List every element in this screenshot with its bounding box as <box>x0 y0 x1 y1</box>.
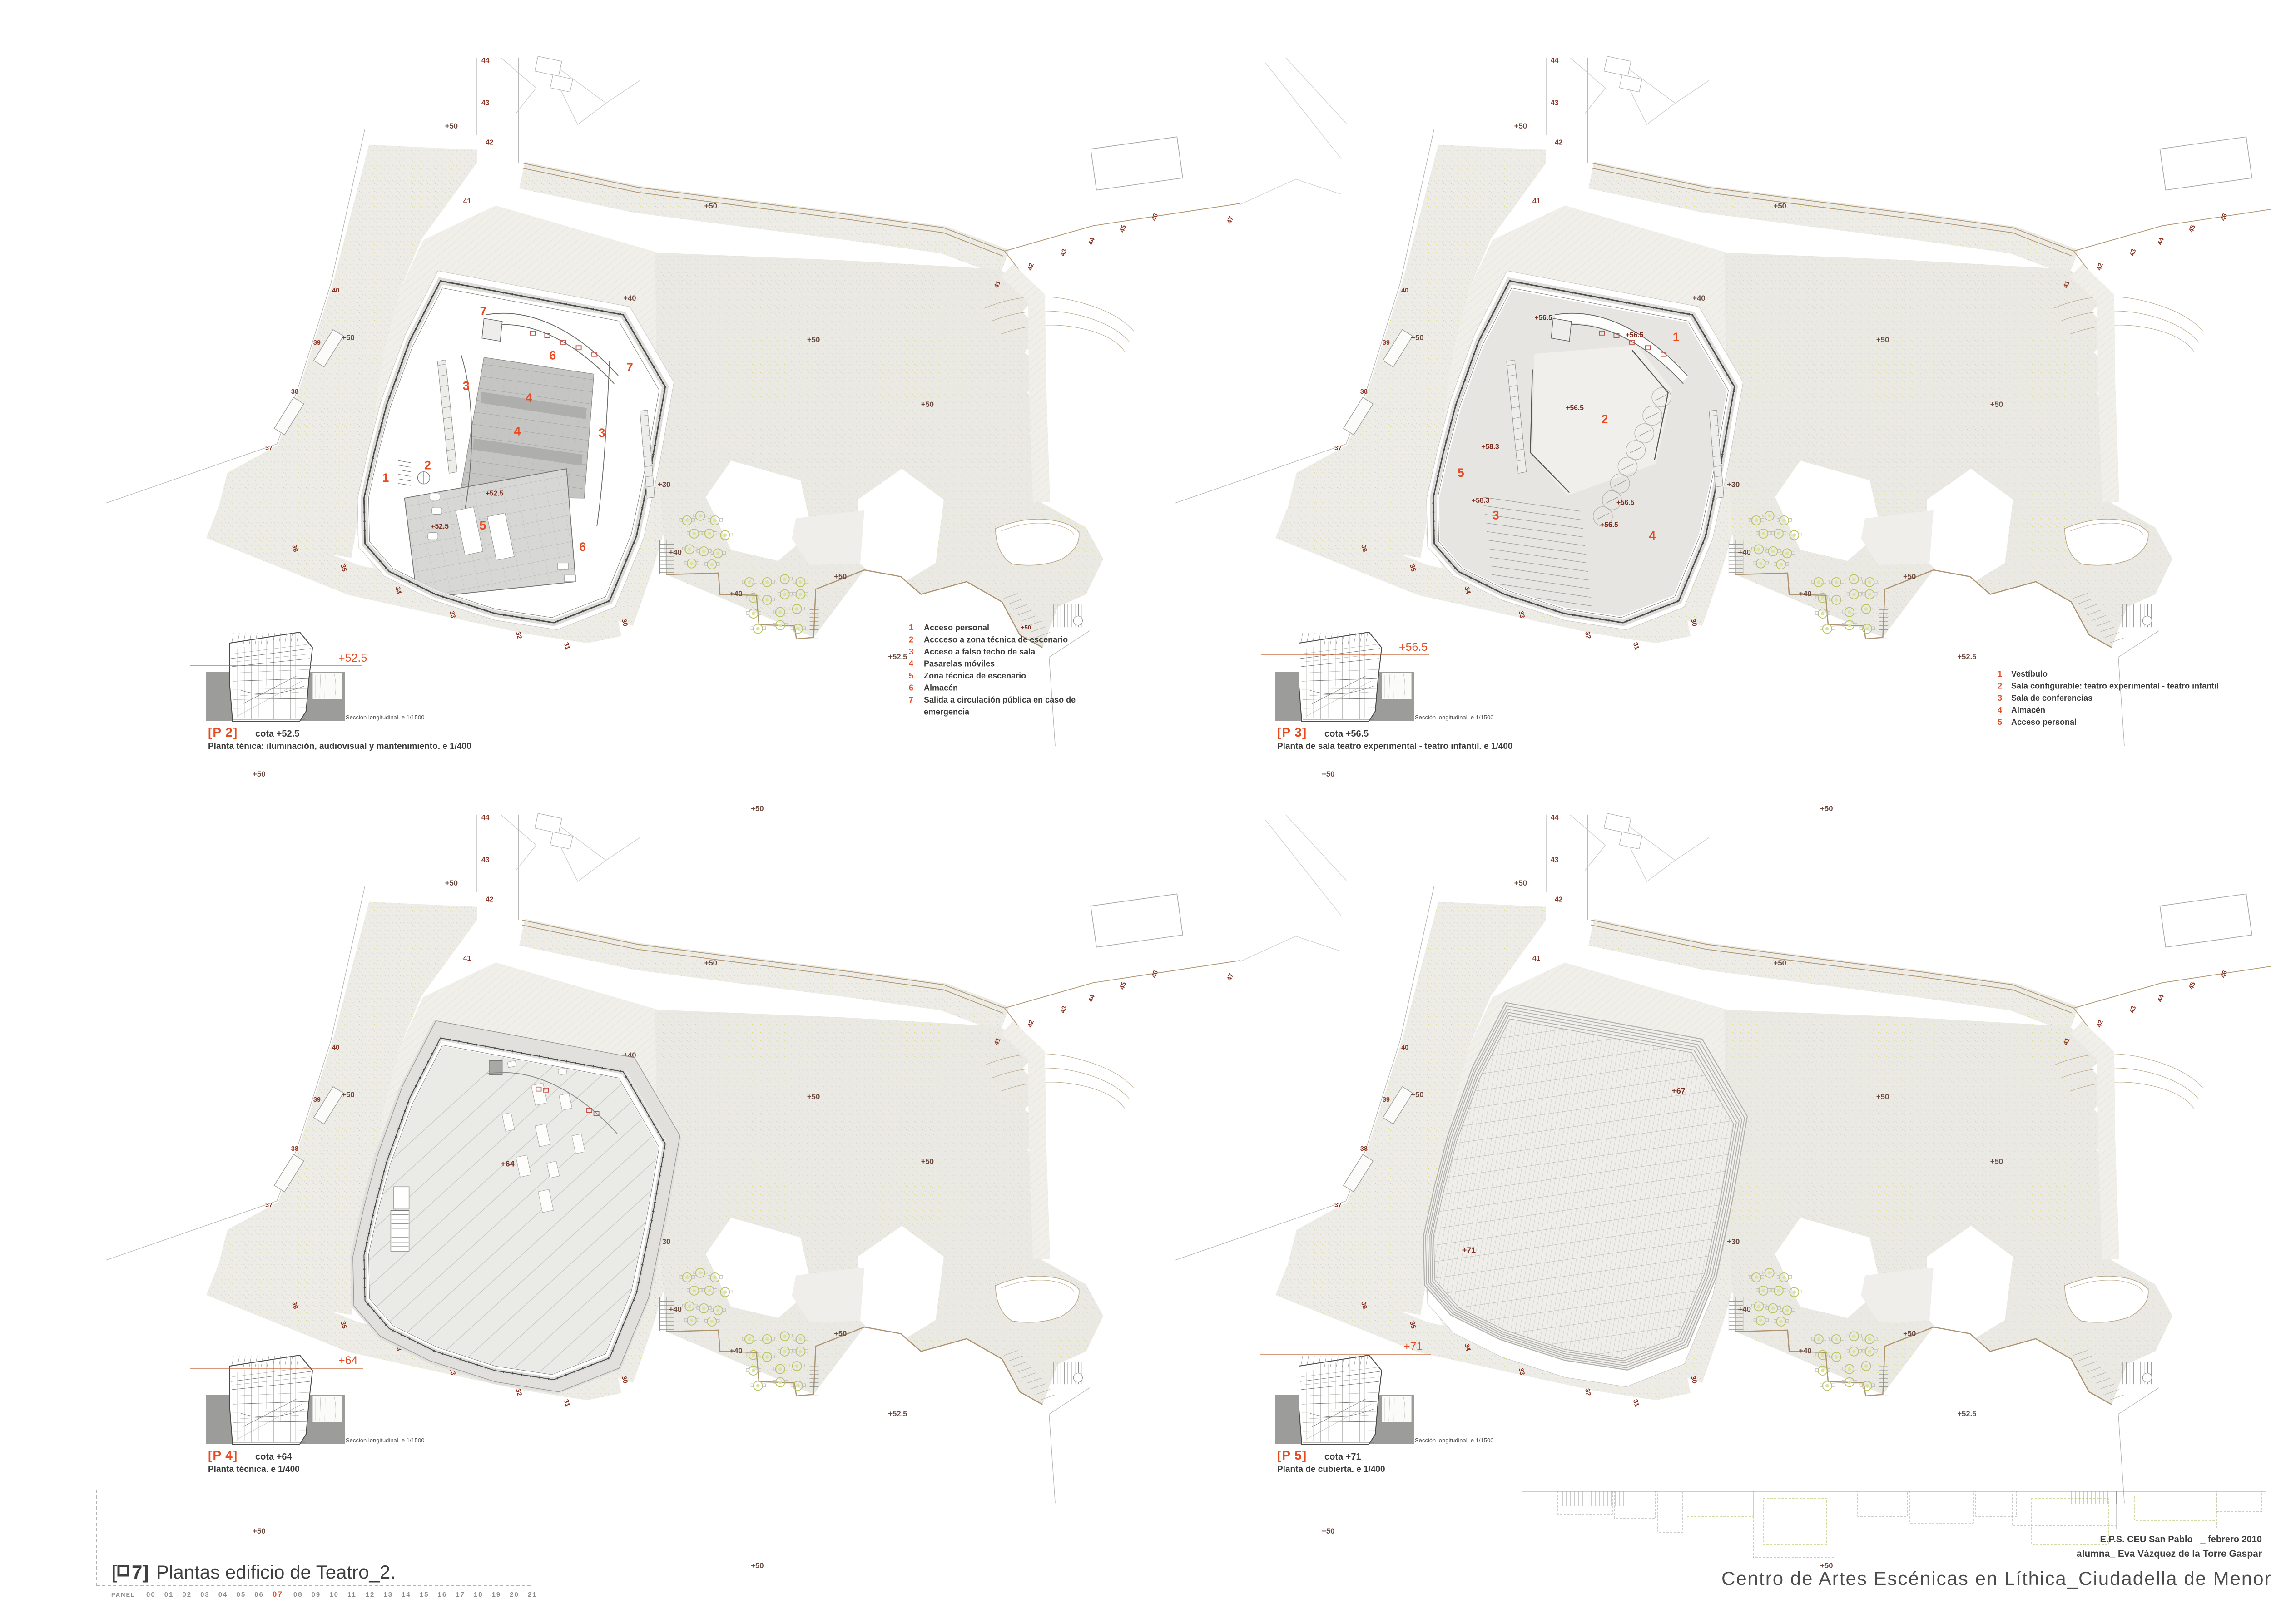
svg-text:+58.3: +58.3 <box>1472 497 1490 505</box>
svg-text:6: 6 <box>579 540 586 554</box>
svg-text:+52.5: +52.5 <box>338 652 367 664</box>
svg-text:4: 4 <box>526 391 532 405</box>
svg-text:alumna_ Eva Vázquez de la Torr: alumna_ Eva Vázquez de la Torre Gaspar <box>2077 1549 2262 1559</box>
svg-text:17: 17 <box>456 1591 465 1599</box>
svg-text:15: 15 <box>420 1591 429 1599</box>
svg-text:7: 7 <box>626 361 633 374</box>
svg-text:04: 04 <box>218 1591 228 1599</box>
svg-text:21: 21 <box>528 1591 537 1599</box>
svg-text:Planta ténica: iluminación, au: Planta ténica: iluminación, audiovisual … <box>208 742 471 751</box>
svg-text:6: 6 <box>549 348 556 362</box>
svg-text:07: 07 <box>273 1590 283 1599</box>
svg-text:Accceso a zona técnica de esce: Accceso a zona técnica de escenario <box>924 635 1068 644</box>
svg-text:cota +71: cota +71 <box>1324 1452 1361 1462</box>
svg-text:+50: +50 <box>1021 624 1031 631</box>
svg-text:05: 05 <box>237 1591 246 1599</box>
svg-text:08: 08 <box>293 1591 303 1599</box>
svg-text:3: 3 <box>599 426 605 440</box>
svg-text:E.P.S. CEU San Pablo _ febre: E.P.S. CEU San Pablo _ febrero 2010 <box>2100 1535 2262 1545</box>
svg-text:PANEL: PANEL <box>111 1591 135 1598</box>
svg-text:2: 2 <box>1998 682 2002 691</box>
svg-text:Acceso a falso techo de sala: Acceso a falso techo de sala <box>924 647 1036 656</box>
svg-text:+71: +71 <box>1462 1245 1476 1254</box>
svg-text:19: 19 <box>492 1591 501 1599</box>
svg-text:01: 01 <box>164 1591 174 1599</box>
svg-text:5: 5 <box>909 671 913 680</box>
svg-text:+52.5: +52.5 <box>431 523 449 530</box>
svg-text:Planta de sala teatro experime: Planta de sala teatro experimental - tea… <box>1277 742 1512 751</box>
svg-text:5: 5 <box>1458 466 1464 480</box>
svg-text:3: 3 <box>1998 693 2002 703</box>
svg-text:11: 11 <box>347 1591 357 1599</box>
svg-text:cota +56.5: cota +56.5 <box>1324 729 1369 739</box>
svg-text:3: 3 <box>1493 509 1499 522</box>
svg-text:5: 5 <box>1998 718 2002 727</box>
svg-text:cota +64: cota +64 <box>255 1452 292 1462</box>
svg-text:7: 7 <box>909 695 913 704</box>
svg-text:[P 3]: [P 3] <box>1277 725 1307 739</box>
svg-text:1: 1 <box>382 471 389 485</box>
svg-text:4: 4 <box>1649 529 1656 542</box>
svg-text:Pasarelas móviles: Pasarelas móviles <box>924 659 995 668</box>
svg-text:20: 20 <box>510 1591 519 1599</box>
svg-text:6: 6 <box>909 683 913 693</box>
svg-text:00: 00 <box>146 1591 156 1599</box>
svg-text:1: 1 <box>1998 669 2002 678</box>
svg-text:Vestíbulo: Vestíbulo <box>2011 669 2048 678</box>
svg-text:16: 16 <box>438 1591 447 1599</box>
svg-text:09: 09 <box>312 1591 321 1599</box>
svg-text:+58.3: +58.3 <box>1481 443 1499 451</box>
svg-text:Sala de conferencias: Sala de conferencias <box>2011 693 2092 703</box>
svg-text:cota +52.5: cota +52.5 <box>255 729 299 739</box>
svg-text:Sección longitudinal. e 1/1500: Sección longitudinal. e 1/1500 <box>1415 1437 1493 1444</box>
svg-text:3: 3 <box>463 379 470 392</box>
svg-text:[P 4]: [P 4] <box>208 1448 238 1462</box>
svg-text:+56.5: +56.5 <box>1600 521 1618 529</box>
svg-text:Sección longitudinal. e 1/1500: Sección longitudinal. e 1/1500 <box>346 714 424 721</box>
svg-text:Planta de cubierta. e 1/400: Planta de cubierta. e 1/400 <box>1277 1465 1385 1474</box>
svg-text:14: 14 <box>402 1591 411 1599</box>
svg-text:3: 3 <box>909 647 913 656</box>
svg-text:2: 2 <box>909 635 913 644</box>
svg-text:+56.5: +56.5 <box>1626 331 1644 339</box>
svg-text:+64: +64 <box>501 1159 514 1168</box>
svg-text:4: 4 <box>1998 706 2002 715</box>
svg-text:2: 2 <box>424 458 431 472</box>
svg-text:5: 5 <box>480 519 486 532</box>
svg-text:[P 5]: [P 5] <box>1277 1448 1307 1462</box>
svg-text:Almacén: Almacén <box>924 683 958 693</box>
svg-text:1: 1 <box>1673 330 1680 344</box>
svg-text:18: 18 <box>474 1591 483 1599</box>
svg-text:03: 03 <box>200 1591 210 1599</box>
svg-text:[P 2]: [P 2] <box>208 725 238 739</box>
svg-text:4: 4 <box>514 425 521 438</box>
svg-text:[: [ <box>112 1561 117 1583</box>
svg-text:+56.5: +56.5 <box>1566 404 1584 412</box>
svg-text:Acceso personal: Acceso personal <box>924 623 989 632</box>
svg-text:Plantas edificio de Teatro_2.: Plantas edificio de Teatro_2. <box>156 1561 396 1583</box>
svg-text:+56.5: +56.5 <box>1534 314 1552 322</box>
svg-text:4: 4 <box>909 659 913 668</box>
svg-text:02: 02 <box>182 1591 192 1599</box>
svg-text:Sección longitudinal. e 1/1500: Sección longitudinal. e 1/1500 <box>346 1437 424 1444</box>
svg-text:12: 12 <box>366 1591 375 1599</box>
svg-text:emergencia: emergencia <box>924 708 970 717</box>
svg-text:Salida a circulación pública e: Salida a circulación pública en caso de <box>924 695 1076 704</box>
svg-text:7]: 7] <box>132 1561 149 1583</box>
svg-text:Sala configurable: teatro expe: Sala configurable: teatro experimental -… <box>2011 682 2219 691</box>
svg-text:Planta técnica. e 1/400: Planta técnica. e 1/400 <box>208 1465 300 1474</box>
svg-text:Zona técnica de escenario: Zona técnica de escenario <box>924 671 1026 680</box>
svg-text:Sección longitudinal. e 1/1500: Sección longitudinal. e 1/1500 <box>1415 714 1493 721</box>
svg-text:+71: +71 <box>1403 1340 1423 1353</box>
svg-text:10: 10 <box>329 1591 339 1599</box>
svg-text:+56.5: +56.5 <box>1399 641 1428 654</box>
svg-text:2: 2 <box>1602 412 1608 426</box>
svg-text:Almacén: Almacén <box>2011 706 2045 715</box>
svg-text:+64: +64 <box>338 1354 358 1367</box>
svg-text:13: 13 <box>383 1591 393 1599</box>
svg-text:+56.5: +56.5 <box>1616 499 1635 506</box>
svg-text:1: 1 <box>909 623 913 632</box>
svg-text:7: 7 <box>480 304 487 317</box>
svg-text:+67: +67 <box>1671 1086 1685 1095</box>
svg-text:Centro de Artes Escénicas en L: Centro de Artes Escénicas en Líthica_Ciu… <box>1721 1568 2271 1589</box>
svg-text:Acceso personal: Acceso personal <box>2011 718 2077 727</box>
svg-text:06: 06 <box>254 1591 264 1599</box>
svg-text:+52.5: +52.5 <box>486 490 504 497</box>
